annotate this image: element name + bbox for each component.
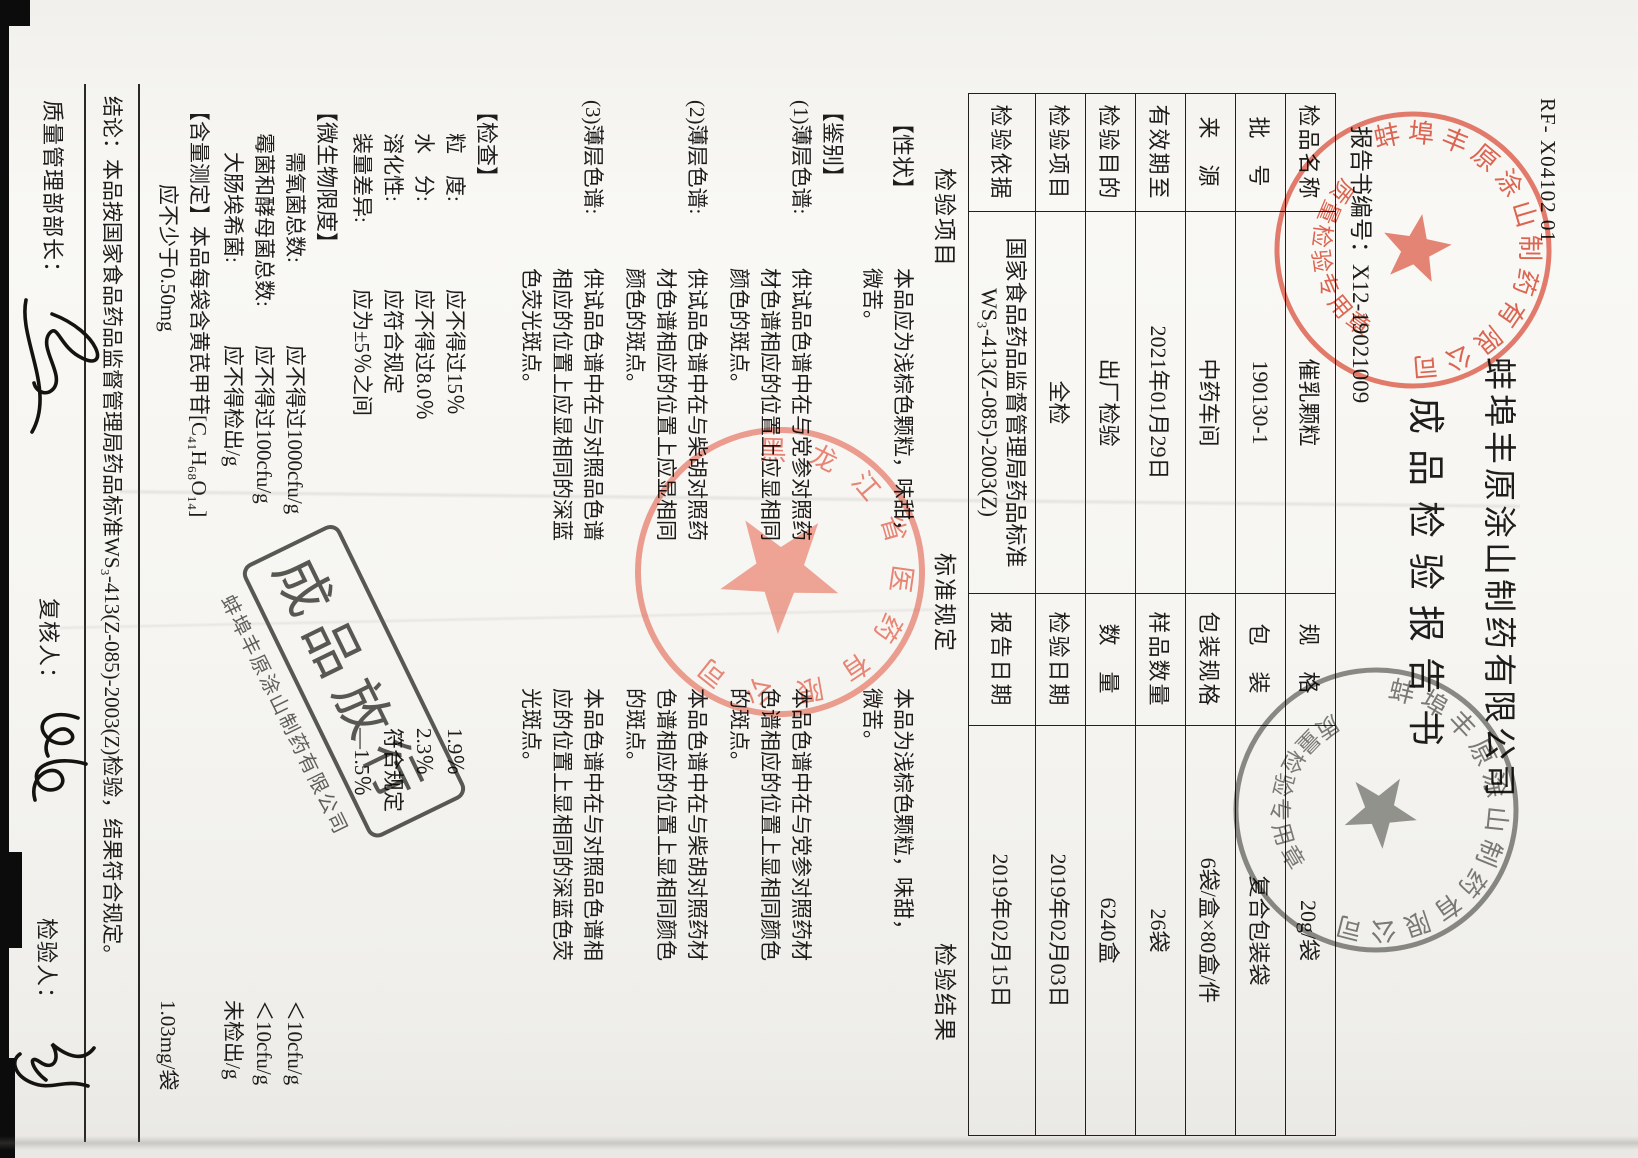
scan-edge-blob-middle	[0, 852, 22, 948]
table-cell: 有效期至	[1136, 94, 1186, 212]
qa-manager-signature	[12, 292, 116, 442]
table-row: 检验依据 国家食品药品监督管理局药品标准 WS₃-413(Z-085)-2003…	[969, 94, 1036, 1136]
standard-fill-variation: 应为±5％之间	[346, 289, 377, 416]
table-cell: 6240盒	[1086, 726, 1136, 1136]
table-row: 检验目的 出厂检验 数 量 6240盒	[1086, 94, 1136, 1136]
label-ecoli: 大肠埃希菌:	[217, 152, 248, 263]
qa-manager-label: 质量管理部部长：	[38, 100, 70, 284]
table-cell: 样品数量	[1136, 594, 1186, 726]
table-row: 来 源 中药车间 包装规格 6袋/盒×80盒/件	[1186, 94, 1236, 1136]
label-fill-variation: 装量差异:	[346, 133, 377, 223]
result-aerobic-count: ＜10cfu/g	[279, 1000, 310, 1085]
standard-mold-yeast-count: 应不得过100cfu/g	[248, 345, 279, 504]
table-cell: 数 量	[1086, 594, 1136, 726]
table-cell: 包装规格	[1186, 594, 1236, 726]
standard-solubility: 应符合规定	[377, 289, 408, 394]
inspector-label: 检验人：	[32, 918, 64, 1010]
label-moisture: 水 分:	[408, 133, 439, 202]
svg-text:质量检验专用章: 质量检验专用章	[1297, 172, 1380, 350]
report-document: RF- X04102 01 蚌埠丰原涂山制药有限公司 成品检验报告书 报告书编号…	[0, 0, 1638, 1158]
table-cell: 中药车间	[1186, 212, 1236, 594]
label-tlc2: (2)薄层色谱:	[681, 100, 712, 214]
table-cell: 出厂检验	[1086, 212, 1136, 594]
section-label-appearance: 【性状】	[887, 112, 918, 200]
table-cell: 国家食品药品监督管理局药品标准 WS₃-413(Z-085)-2003(Z)	[969, 212, 1036, 594]
column-header-result: 检验结果	[930, 943, 964, 1043]
scanned-report-page: RF- X04102 01 蚌埠丰原涂山制药有限公司 成品检验报告书 报告书编号…	[0, 0, 1638, 1158]
conclusion: 结论：本品按国家食品药品监督管理局药品标准WS₃-413(Z-085)-2003…	[84, 84, 140, 1142]
result-mold-yeast-count: ＜10cfu/g	[248, 1000, 279, 1085]
label-tlc3: (3)薄层色谱:	[577, 100, 608, 214]
scan-bottom-shadow	[0, 1136, 1638, 1150]
table-cell: 检验日期	[1036, 594, 1086, 726]
reviewer-label: 复核人：	[34, 598, 66, 690]
standard-ecoli: 应不得检出/g	[217, 345, 248, 466]
section-label-microbial: 【微生物限度】	[311, 100, 342, 254]
scan-edge-strip	[0, 0, 9, 1158]
table-cell: 报告日期	[969, 594, 1036, 726]
reviewer-signature	[8, 700, 108, 820]
table-cell: 2019年02月03日	[1036, 726, 1086, 1136]
table-cell: 检验项目	[1036, 94, 1086, 212]
standard-aerobic-count: 应不得过1000cfu/g	[279, 345, 310, 514]
qc-stamp-red-bottom-text: 质量检验专用章	[1297, 172, 1380, 350]
label-particle-size: 粒 度:	[439, 133, 470, 202]
label-mold-yeast-count: 霉菌和酵母菌总数:	[248, 133, 279, 307]
section-label-identification: 【鉴别】	[817, 100, 848, 188]
table-cell: 2021年01月29日	[1136, 212, 1186, 594]
standard-particle-size: 应不得过15％	[439, 289, 470, 415]
section-label-tests: 【检查】	[471, 100, 502, 188]
table-cell: 全检	[1036, 212, 1086, 594]
result-ecoli: 未检出/g	[217, 1000, 248, 1079]
qc-stamp-red: 蚌埠丰原涂山制药有限公司 质量检验专用章	[1249, 86, 1577, 414]
column-header-item: 检验项目	[930, 168, 964, 268]
release-stamp: 成品放行 蚌埠丰原涂山制药有限公司	[194, 511, 478, 869]
table-cell: 来 源	[1186, 94, 1236, 212]
table-cell: 2019年02月15日	[969, 726, 1036, 1136]
release-stamp-text: 成品放行	[261, 548, 436, 820]
result-tlc3: 本品色谱中在与对照品色谱相 应的位置上显相同的深蓝色荧 光斑点。	[515, 688, 608, 993]
table-cell: 26袋	[1136, 726, 1186, 1136]
result-assay: 1.03mg/袋	[152, 1000, 183, 1090]
scan-edge-blob-top	[0, 0, 30, 26]
table-row: 有效期至 2021年01月29日 样品数量 26袋	[1136, 94, 1186, 1136]
table-cell: 检验依据	[969, 94, 1036, 212]
standard-tlc3: 供试品色谱中在与对照品色谱 相应的位置上应显相同的深蓝 色荧光斑点。	[515, 268, 608, 573]
standard-moisture: 应不得过8.0％	[408, 289, 439, 420]
label-solubility: 溶化性:	[377, 133, 408, 202]
inspector-signature	[2, 1016, 106, 1126]
label-tlc1: (1)薄层色谱:	[785, 100, 816, 214]
label-aerobic-count: 需氧菌总数:	[279, 152, 310, 263]
table-cell: 检验目的	[1086, 94, 1136, 212]
result-tlc2: 本品色谱中在与柴胡对照药材 色谱相应的位置上显相同颜色 的斑点。	[619, 688, 712, 993]
table-row: 检验项目 全检 检验日期 2019年02月03日	[1036, 94, 1086, 1136]
